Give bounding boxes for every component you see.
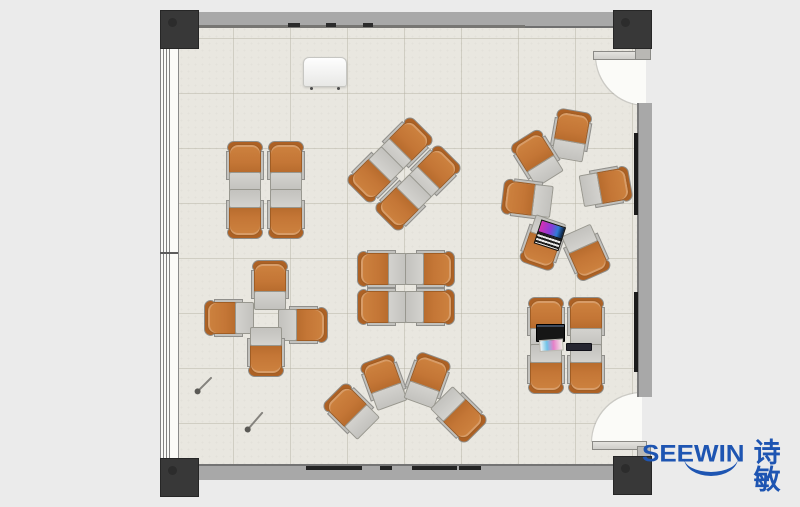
window-mullion-tick [160,252,178,254]
wall-rail [197,25,525,28]
wall-mount-mark [363,23,373,27]
tablet-armchair [405,289,455,325]
chair-tablet [229,189,261,208]
chair-seat [229,144,261,175]
corner-post-top-left [160,10,199,49]
wall-mount-mark [326,23,336,27]
chair-seat [360,253,391,285]
chair-seat [229,205,261,236]
tablet-armchair [227,189,263,239]
tablet-armchair [268,141,304,191]
chair-tablet [405,291,424,323]
chair-seat [570,300,602,331]
tablet-armchair [500,178,554,220]
tablet-armchair [357,289,407,325]
chair-seat [270,205,302,236]
wall-whiteboard [634,133,638,215]
wall-mount-mark [412,466,457,470]
chair-seat [530,360,562,391]
chair-seat [421,253,452,285]
wall-whiteboard [634,292,638,372]
chair-seat [254,263,286,294]
chair-seat [421,291,452,323]
tablet-armchair [268,189,304,239]
wall-mount-mark [306,466,362,470]
wall-top [197,12,613,28]
tablet-armchair [248,327,284,377]
chair-seat [570,360,602,391]
podium [303,57,347,87]
corner-post-bottom-left [160,458,199,497]
wall-mount-mark [288,23,300,27]
tablet-armchair [405,251,455,287]
floor-plan-canvas: SEEWIN 诗敏 [0,0,800,507]
corner-post-top-right [613,10,652,49]
tablet-armchair [568,344,604,394]
tablet-armchair [568,297,604,347]
tablet-armchair [278,307,328,343]
chair-tablet [270,189,302,208]
chair-seat [207,302,238,334]
chair-seat [294,309,325,341]
chair-seat [250,343,282,374]
chair-tablet [250,327,282,346]
chair-tablet [405,253,424,285]
wall-mount-mark [459,466,481,470]
chair-seat [270,144,302,175]
wall-right [637,103,652,397]
notebook [566,343,592,351]
brand-cjk-name: 诗敏 [754,440,800,494]
tablet-armchair [252,260,288,310]
wall-bottom [197,464,613,480]
window-wall-left [160,47,179,458]
tablet-armchair [204,300,254,336]
tablet-armchair [357,251,407,287]
color-print [539,338,564,352]
wall-mount-mark [380,466,392,470]
chair-seat [360,291,391,323]
tablet-armchair [227,141,263,191]
